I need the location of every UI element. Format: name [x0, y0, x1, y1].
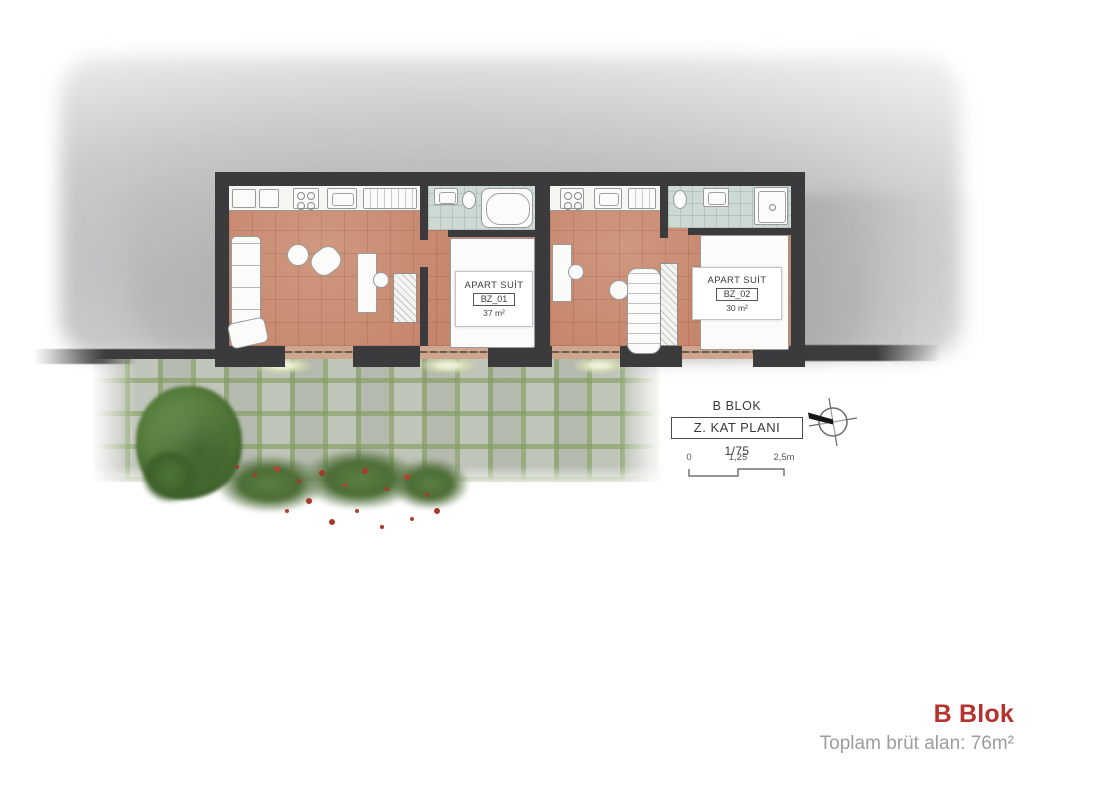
terrace-door	[552, 346, 620, 359]
wardrobe	[660, 263, 678, 346]
bathroom-sink	[434, 188, 458, 205]
kitchen1-counter	[229, 186, 420, 211]
block-name: B BLOK	[660, 399, 814, 413]
kitchen2-counter	[550, 186, 660, 211]
scale-label-end: 2,5m	[773, 452, 794, 463]
round-table	[287, 244, 309, 266]
scale-label-mid: 1,25	[729, 452, 748, 463]
counter-drawers	[363, 188, 417, 209]
fridge	[232, 189, 256, 208]
tree-clump	[142, 452, 198, 502]
footer-block-name: B Blok	[820, 700, 1014, 729]
watercolor-wash-right	[790, 195, 980, 353]
shower	[754, 187, 788, 225]
plan-name-box: Z. KAT PLANI	[671, 417, 803, 439]
kitchen-sink	[594, 188, 622, 209]
desk-chair	[373, 272, 389, 288]
stove	[293, 188, 319, 209]
counter-drawers	[628, 188, 656, 209]
stove	[560, 188, 584, 209]
kitchen-sink	[327, 188, 357, 209]
bush	[390, 458, 470, 510]
wall-south-segment	[488, 346, 552, 367]
ground-line-right	[798, 345, 940, 361]
apartment1-label-card: APART SUİT BZ_01 37 m²	[455, 271, 533, 327]
scale-label-start: 0	[686, 452, 691, 463]
apartment2-label-card: APART SUİT BZ_02 30 m²	[692, 267, 782, 320]
sofa	[627, 268, 661, 354]
toilet	[673, 190, 687, 209]
wardrobe	[393, 273, 417, 323]
toilet	[462, 191, 476, 209]
wall-west	[215, 172, 229, 367]
scale-bar: 0 1,25 2,5m	[672, 452, 796, 480]
wall-south-segment	[215, 346, 285, 367]
bush-flowers	[235, 465, 239, 469]
wall-bedroom1	[420, 267, 428, 346]
title-block: B BLOK Z. KAT PLANI 1/75	[660, 399, 814, 458]
wall-bath2-left	[660, 186, 668, 238]
apartment2-code: BZ_02	[716, 288, 759, 301]
cabinet	[259, 189, 279, 208]
apartment2-area: 30 m²	[726, 303, 748, 313]
north-arrow-icon	[808, 397, 858, 447]
wall-bath1-left	[420, 186, 428, 240]
round-table	[609, 280, 629, 300]
scale-bar-rule	[672, 465, 796, 479]
floor-plan-canvas: APART SUİT BZ_01 37 m² APART SUİT BZ_02 …	[0, 0, 1100, 795]
desk-chair	[568, 264, 584, 280]
wall-south-segment	[353, 346, 420, 367]
apartment2-title: APART SUİT	[708, 275, 767, 286]
wall-bath1-bottom	[448, 230, 536, 237]
wall-bath2-bottom	[688, 228, 791, 235]
terrace-door	[285, 346, 353, 359]
apartment1-title: APART SUİT	[465, 280, 524, 291]
building: APART SUİT BZ_01 37 m² APART SUİT BZ_02 …	[215, 172, 805, 367]
apartment1-area: 37 m²	[483, 308, 505, 318]
footer-total-area: Toplam brüt alan: 76m²	[820, 733, 1014, 755]
bathroom-sink	[703, 188, 729, 207]
bathtub	[481, 188, 533, 228]
wall-east	[791, 172, 805, 367]
wall-north	[215, 172, 805, 186]
wall-apartment-divider	[535, 186, 550, 346]
apartment1-code: BZ_01	[473, 293, 516, 306]
footer: B Blok Toplam brüt alan: 76m²	[820, 700, 1014, 755]
